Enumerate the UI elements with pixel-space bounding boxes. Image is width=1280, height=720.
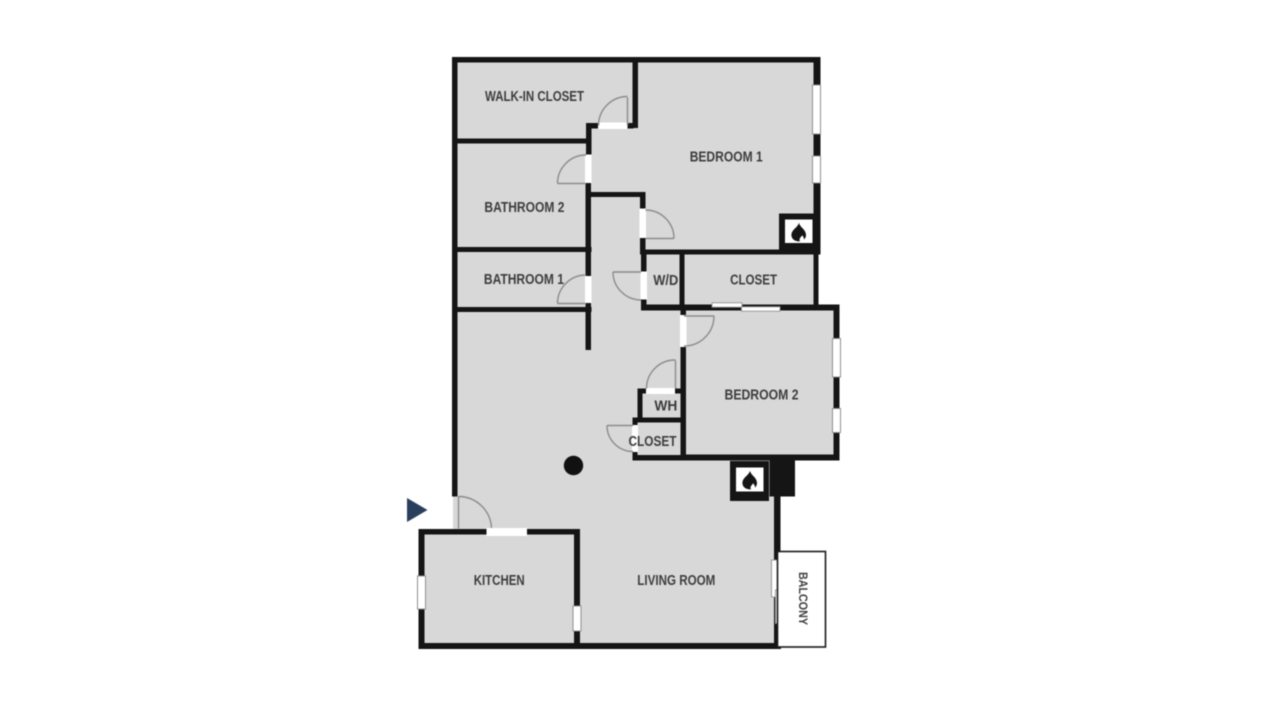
svg-text:KITCHEN: KITCHEN: [474, 573, 525, 589]
svg-text:CLOSET: CLOSET: [730, 273, 777, 289]
svg-text:W/D: W/D: [653, 273, 678, 289]
svg-text:BATHROOM 1: BATHROOM 1: [484, 272, 564, 288]
svg-text:WALK-IN CLOSET: WALK-IN CLOSET: [485, 89, 584, 105]
svg-text:LIVING ROOM: LIVING ROOM: [637, 573, 715, 589]
svg-text:BATHROOM 2: BATHROOM 2: [484, 200, 564, 216]
svg-text:WH: WH: [654, 399, 677, 415]
svg-text:BEDROOM 2: BEDROOM 2: [725, 388, 799, 404]
svg-text:CLOSET: CLOSET: [629, 434, 677, 450]
svg-text:BEDROOM 1: BEDROOM 1: [690, 150, 763, 166]
svg-text:BALCONY: BALCONY: [796, 572, 808, 625]
